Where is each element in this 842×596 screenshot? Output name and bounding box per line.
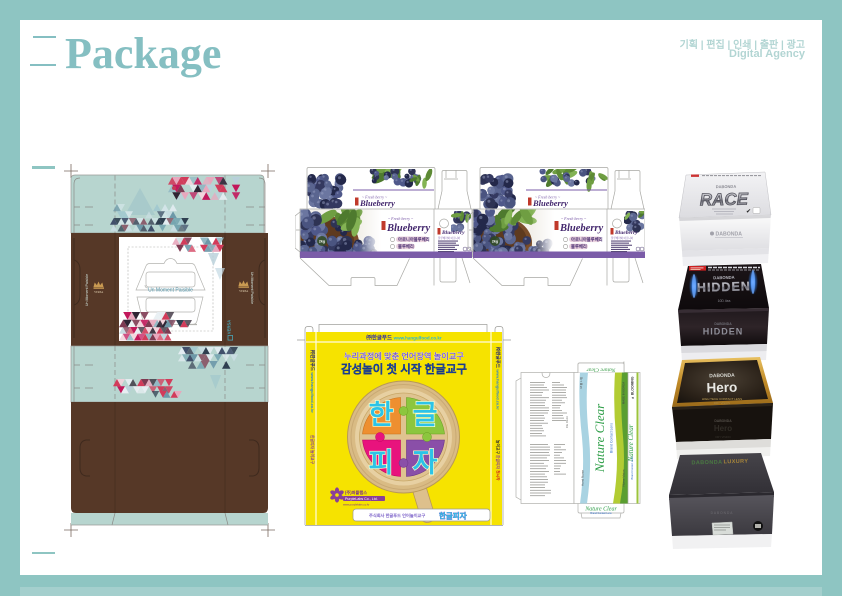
svg-text:블루베리와 아로니아: 블루베리와 아로니아 bbox=[438, 236, 461, 240]
svg-text:MADE IN KOREA: MADE IN KOREA bbox=[622, 382, 626, 404]
svg-text:LUXURY: LUXURY bbox=[723, 459, 748, 466]
svg-text:㈜한글푸드 www.hangulfood.co.kr: ㈜한글푸드 www.hangulfood.co.kr bbox=[495, 347, 502, 410]
svg-text:피: 피 bbox=[369, 448, 394, 478]
svg-text:한: 한 bbox=[369, 400, 394, 430]
svg-text:CE 0123: CE 0123 bbox=[565, 416, 569, 428]
svg-text:누리과정에 맞춘 언어장역 놀이교구: 누리과정에 맞춘 언어장역 놀이교구 bbox=[344, 351, 464, 361]
svg-text:Hero: Hero bbox=[714, 424, 732, 433]
svg-text:2kg: 2kg bbox=[492, 240, 498, 244]
svg-text:VERSA: VERSA bbox=[227, 320, 232, 334]
svg-text:Brand Contact Lens: Brand Contact Lens bbox=[590, 512, 612, 515]
svg-text:DRY VISION: DRY VISION bbox=[716, 435, 731, 439]
svg-text:블루베리와 아로니아: 블루베리와 아로니아 bbox=[611, 236, 634, 240]
svg-text:Un Moment Paisible: Un Moment Paisible bbox=[148, 288, 193, 294]
svg-text:DABONDA: DABONDA bbox=[716, 184, 737, 189]
svg-text:~ Fresh berry ~: ~ Fresh berry ~ bbox=[388, 216, 414, 221]
svg-text:Brand Contact Lens: Brand Contact Lens bbox=[610, 423, 614, 453]
svg-text:Nature Clear: Nature Clear bbox=[592, 403, 607, 473]
svg-text:Nurse Vision: Nurse Vision bbox=[622, 469, 626, 486]
svg-text:감성놀이 첫 시작 한글교구: 감성놀이 첫 시작 한글교구 bbox=[341, 362, 467, 376]
svg-text:Blueberry: Blueberry bbox=[614, 230, 638, 236]
svg-text:Blueberry: Blueberry bbox=[532, 198, 568, 208]
svg-text:㈜한글푸드 www.hangulfood.co.kr: ㈜한글푸드 www.hangulfood.co.kr bbox=[366, 334, 442, 342]
svg-text:✔: ✔ bbox=[746, 209, 751, 215]
svg-text:글: 글 bbox=[413, 400, 438, 430]
svg-text:블루베리: 블루베리 bbox=[398, 243, 414, 250]
svg-text:Brand Contact Lens: Brand Contact Lens bbox=[630, 456, 634, 480]
svg-text:DABONDA: DABONDA bbox=[716, 232, 743, 238]
svg-text:▲ BLOOMING: ▲ BLOOMING bbox=[631, 376, 635, 399]
svg-text:VERSA: VERSA bbox=[239, 290, 248, 293]
svg-text:Blueberry: Blueberry bbox=[386, 223, 431, 234]
svg-text:DABONDA: DABONDA bbox=[691, 460, 722, 467]
svg-text:PurpleLabs Co., Ltd.: PurpleLabs Co., Ltd. bbox=[345, 497, 378, 501]
svg-text:HIDDEN: HIDDEN bbox=[703, 327, 744, 337]
svg-text:DABONDA: DABONDA bbox=[714, 322, 732, 326]
svg-text:주식회사 한글푸드 언어놀이교구: 주식회사 한글푸드 언어놀이교구 bbox=[369, 512, 425, 519]
svg-text:(주)퍼플랩스: (주)퍼플랩스 bbox=[345, 489, 367, 496]
svg-text:놀이교구 한글피자 첫시작: 놀이교구 한글피자 첫시작 bbox=[496, 440, 501, 481]
svg-text:Blueberry: Blueberry bbox=[559, 223, 604, 234]
svg-text:DRY VISION: DRY VISION bbox=[714, 401, 730, 405]
svg-text:Nature Clear: Nature Clear bbox=[586, 367, 617, 373]
svg-text:www.purplelabs.co.kr: www.purplelabs.co.kr bbox=[343, 503, 369, 507]
svg-text:DABONDA: DABONDA bbox=[709, 373, 735, 380]
svg-text:㈜한글푸드 www.hangulfood.co.kr: ㈜한글푸드 www.hangulfood.co.kr bbox=[309, 350, 316, 413]
svg-text:Blueberry: Blueberry bbox=[441, 230, 465, 236]
svg-text:Un Moment Paisible: Un Moment Paisible bbox=[85, 274, 89, 306]
svg-text:아로니아블루베리: 아로니아블루베리 bbox=[398, 236, 430, 243]
svg-text:아로니아블루베리: 아로니아블루베리 bbox=[571, 236, 603, 243]
svg-text:10D 4ea: 10D 4ea bbox=[718, 299, 731, 303]
svg-text:HIDDEN: HIDDEN bbox=[697, 279, 751, 294]
svg-text:자: 자 bbox=[413, 448, 438, 478]
svg-text:한글피자 놀이교구: 한글피자 놀이교구 bbox=[310, 435, 315, 465]
svg-text:Un Moment Paisible: Un Moment Paisible bbox=[250, 272, 254, 304]
svg-text:Hand Nurse: Hand Nurse bbox=[581, 470, 585, 486]
svg-text:~ Fresh berry ~: ~ Fresh berry ~ bbox=[561, 216, 587, 221]
svg-text:Blueberry: Blueberry bbox=[359, 198, 395, 208]
svg-text:Hero: Hero bbox=[706, 380, 737, 396]
svg-text:2kg: 2kg bbox=[319, 240, 325, 244]
svg-text:M O L D: M O L D bbox=[579, 377, 583, 389]
svg-text:DABONDA: DABONDA bbox=[711, 511, 734, 515]
svg-text:RACE: RACE bbox=[700, 190, 749, 210]
svg-text:VERSA: VERSA bbox=[94, 291, 103, 294]
svg-text:한글피자: 한글피자 bbox=[439, 511, 467, 521]
svg-text:블루베리: 블루베리 bbox=[571, 243, 587, 250]
svg-text:DABONDA: DABONDA bbox=[714, 419, 732, 423]
